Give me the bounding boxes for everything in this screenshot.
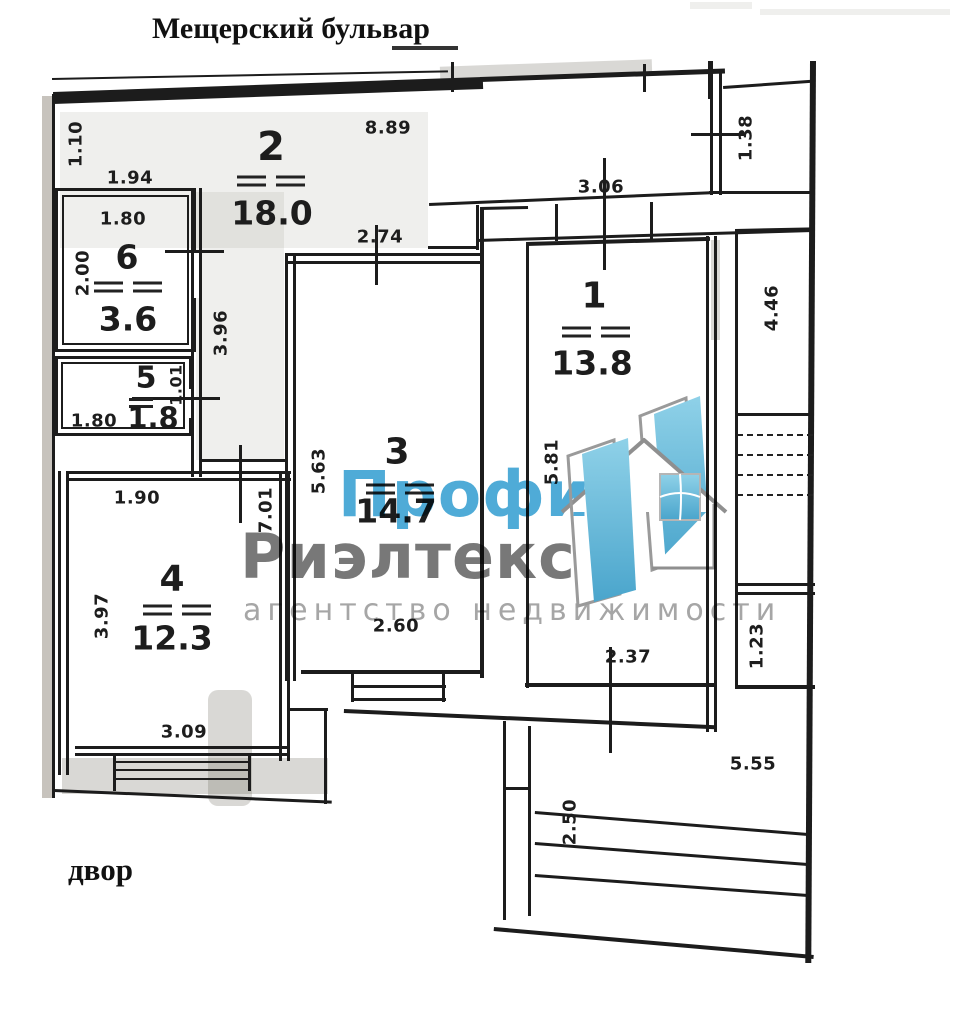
room4-area: 12.3	[131, 619, 212, 658]
dim-room6-depth: 2.00	[73, 250, 94, 296]
wall	[67, 471, 291, 474]
wall	[429, 191, 711, 206]
wall	[287, 708, 328, 711]
dim-terrace-depth: 2.50	[560, 799, 581, 845]
wall	[351, 670, 354, 702]
wall	[113, 753, 116, 791]
wall	[735, 583, 815, 586]
wall	[805, 61, 816, 963]
wall	[709, 191, 812, 194]
wall	[476, 205, 479, 250]
dim-top-width: 8.89	[365, 118, 411, 139]
window-line	[113, 778, 251, 780]
wall	[287, 471, 290, 761]
wall-tick	[165, 250, 224, 253]
wall	[442, 670, 445, 702]
street-label: Мещерский бульвар	[152, 12, 430, 46]
room1-area: 13.8	[551, 344, 632, 383]
window-line	[737, 494, 813, 496]
window-line	[113, 761, 251, 763]
window-line	[737, 474, 813, 476]
room3-number: 3	[384, 432, 409, 473]
wall	[555, 204, 558, 241]
room4-area-mark	[143, 605, 211, 616]
wall	[191, 188, 194, 477]
dim-loggia-upper-depth: 4.46	[762, 285, 783, 331]
dim-room3-bottom-width: 2.60	[373, 616, 419, 637]
wall	[480, 206, 528, 210]
wall	[67, 478, 291, 481]
dim-room3-top-width: 2.74	[357, 227, 403, 248]
wall	[301, 670, 484, 674]
room5-area: 1.8	[127, 401, 178, 435]
wall	[735, 413, 814, 416]
wall	[503, 721, 506, 920]
room2-area: 18.0	[231, 194, 312, 233]
wall	[75, 746, 290, 749]
scan-noise-top-right	[690, 2, 752, 9]
wall	[52, 70, 448, 80]
room6-area: 3.6	[99, 300, 157, 339]
street-label-underline	[392, 46, 458, 50]
wall	[735, 230, 738, 689]
dim-room5-depth: 1.01	[167, 364, 186, 405]
wall	[650, 202, 653, 239]
room6-area-mark	[94, 282, 162, 293]
wall	[293, 253, 296, 681]
room3-area: 14.7	[355, 492, 436, 531]
wall	[480, 208, 484, 678]
dim-room1-width: 2.37	[605, 647, 651, 668]
scan-noise-top-right-2	[760, 9, 950, 15]
dim-room1-depth: 5.81	[542, 439, 563, 485]
wall	[428, 246, 479, 249]
wall	[723, 80, 812, 89]
wall-tick	[643, 64, 646, 92]
wall	[735, 592, 815, 595]
dim-room4-depth: 3.97	[92, 593, 113, 639]
watermark-tagline: агентство недвижимости	[243, 593, 781, 628]
wall	[201, 459, 288, 462]
wall	[526, 244, 529, 688]
dim-room3-depth: 5.63	[309, 448, 330, 494]
wall-tick	[451, 62, 454, 92]
wall	[53, 77, 483, 104]
wall	[66, 471, 69, 775]
scan-shade-balcony	[62, 758, 328, 794]
wall	[75, 753, 290, 756]
dim-left-upper: 1.10	[66, 121, 87, 167]
wall	[735, 685, 815, 689]
wall	[528, 726, 531, 916]
yard-label: двор	[68, 852, 133, 888]
wall	[285, 253, 484, 256]
dim-terrace-width: 5.55	[730, 754, 776, 775]
dim-loggia-lower-depth: 1.23	[747, 623, 768, 669]
wall	[279, 471, 282, 761]
room4-number: 4	[159, 559, 184, 600]
wall	[248, 753, 251, 791]
window-line	[113, 769, 251, 771]
wall	[58, 471, 61, 775]
window-line	[737, 434, 813, 436]
wall	[714, 236, 717, 732]
wall	[525, 683, 714, 687]
room6-number: 6	[116, 238, 139, 277]
dim-room4-upper-width: 1.90	[114, 488, 160, 509]
wall	[351, 698, 446, 701]
wall	[503, 787, 531, 790]
wall	[199, 188, 202, 477]
floor-plan-scan: Мещерский бульвар двор	[0, 0, 972, 1024]
room1-number: 1	[581, 276, 606, 317]
room5-number: 5	[136, 361, 157, 396]
wall	[494, 927, 814, 959]
window-line	[737, 454, 813, 456]
wall	[535, 842, 811, 866]
wall	[535, 874, 811, 897]
dim-room5-width: 1.80	[71, 411, 117, 432]
wall	[324, 711, 327, 804]
dim-room6-width: 1.80	[100, 209, 146, 230]
dim-room4-width: 3.09	[161, 722, 207, 743]
dimension-line	[603, 158, 606, 270]
agency-logo	[556, 386, 736, 624]
dim-corridor-width: 3.06	[578, 177, 624, 198]
room2-area-mark	[237, 176, 305, 187]
dim-hall-depth: 3.96	[211, 310, 232, 356]
wall	[706, 236, 709, 732]
dim-left-offset: 1.94	[107, 168, 153, 189]
wall	[351, 685, 446, 688]
room1-area-mark	[562, 327, 630, 338]
wall	[285, 261, 484, 264]
dim-niche-depth: 1.38	[736, 115, 757, 161]
room2-number: 2	[257, 124, 285, 170]
dimension-line	[239, 445, 242, 523]
dim-hall-lower-depth: 7.01	[256, 487, 277, 533]
